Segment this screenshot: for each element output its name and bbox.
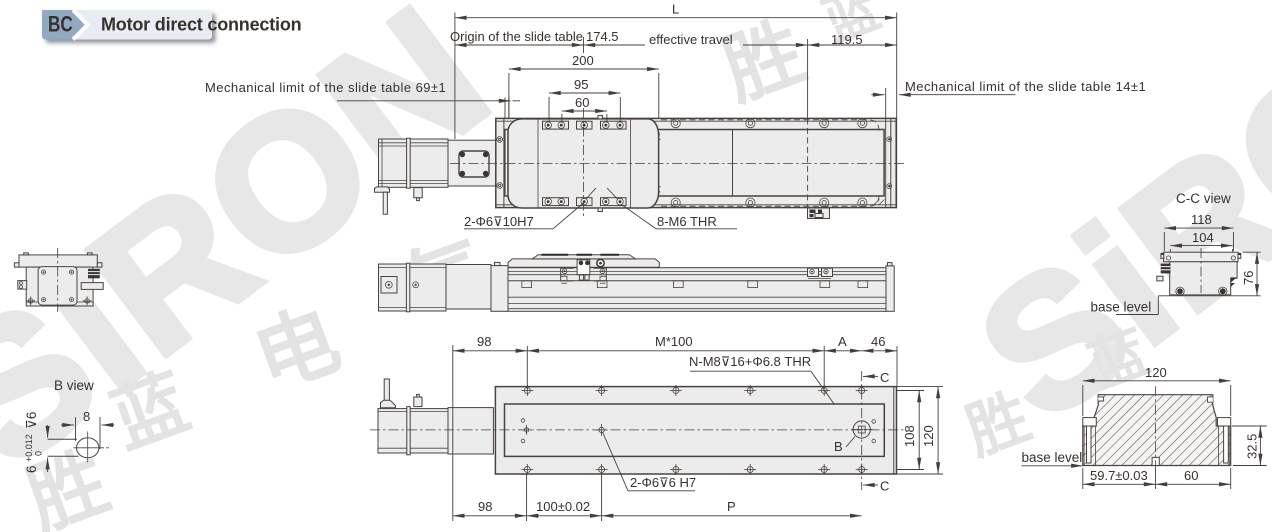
- svg-text:C-C view: C-C view: [1176, 191, 1231, 206]
- svg-text:8: 8: [83, 409, 90, 424]
- svg-text:P: P: [727, 499, 736, 514]
- svg-text:120: 120: [921, 425, 936, 447]
- svg-text:base level: base level: [1091, 300, 1152, 315]
- svg-text:95: 95: [574, 77, 588, 92]
- svg-text:C: C: [880, 479, 889, 494]
- svg-text:60: 60: [575, 95, 589, 110]
- svg-text:119.5: 119.5: [831, 32, 863, 47]
- svg-text:98: 98: [478, 499, 492, 514]
- svg-text:Motor direct connection: Motor direct connection: [101, 15, 301, 35]
- svg-text:Mechanical limit of the slide: Mechanical limit of the slide table 69±1: [205, 80, 446, 95]
- svg-text:0: 0: [34, 451, 44, 456]
- svg-text:118: 118: [1191, 212, 1212, 227]
- svg-text:59.7±0.03: 59.7±0.03: [1090, 468, 1148, 483]
- svg-text:6: 6: [24, 465, 39, 473]
- svg-text:⊽6: ⊽6: [24, 412, 39, 429]
- svg-text:98: 98: [477, 334, 491, 349]
- svg-text:100±0.02: 100±0.02: [536, 499, 590, 514]
- svg-text:B: B: [834, 439, 843, 454]
- svg-text:A: A: [838, 334, 847, 349]
- svg-text:32.5: 32.5: [1245, 434, 1260, 459]
- svg-text:120: 120: [1145, 365, 1167, 380]
- svg-text:B view: B view: [54, 378, 94, 393]
- svg-text:76: 76: [1241, 271, 1256, 285]
- svg-text:8-M6 THR: 8-M6 THR: [657, 214, 717, 229]
- svg-text:108: 108: [902, 425, 917, 447]
- svg-text:effective travel: effective travel: [649, 32, 733, 47]
- svg-text:104: 104: [1192, 230, 1214, 245]
- svg-text:2-Φ6⊽10H7: 2-Φ6⊽10H7: [464, 214, 534, 229]
- svg-text:174.5: 174.5: [586, 29, 619, 44]
- svg-text:M*100: M*100: [655, 334, 693, 349]
- svg-text:200: 200: [572, 53, 594, 68]
- svg-text:C: C: [880, 370, 889, 385]
- svg-text:Origin of the slide table: Origin of the slide table: [450, 29, 583, 44]
- svg-text:2-Φ6⊽6 H7: 2-Φ6⊽6 H7: [630, 475, 696, 490]
- svg-text:Mechanical limit of the slide: Mechanical limit of the slide table 14±1: [905, 79, 1146, 94]
- svg-text:N-M8⊽16+Φ6.8 THR: N-M8⊽16+Φ6.8 THR: [689, 354, 811, 369]
- svg-text:60: 60: [1184, 468, 1198, 483]
- svg-text:L: L: [672, 2, 679, 17]
- svg-text:BC: BC: [48, 13, 73, 38]
- svg-text:46: 46: [871, 334, 885, 349]
- svg-text:base level: base level: [1022, 450, 1083, 465]
- svg-text:+0.012: +0.012: [24, 434, 34, 462]
- svg-text:胜: 胜: [712, 7, 815, 116]
